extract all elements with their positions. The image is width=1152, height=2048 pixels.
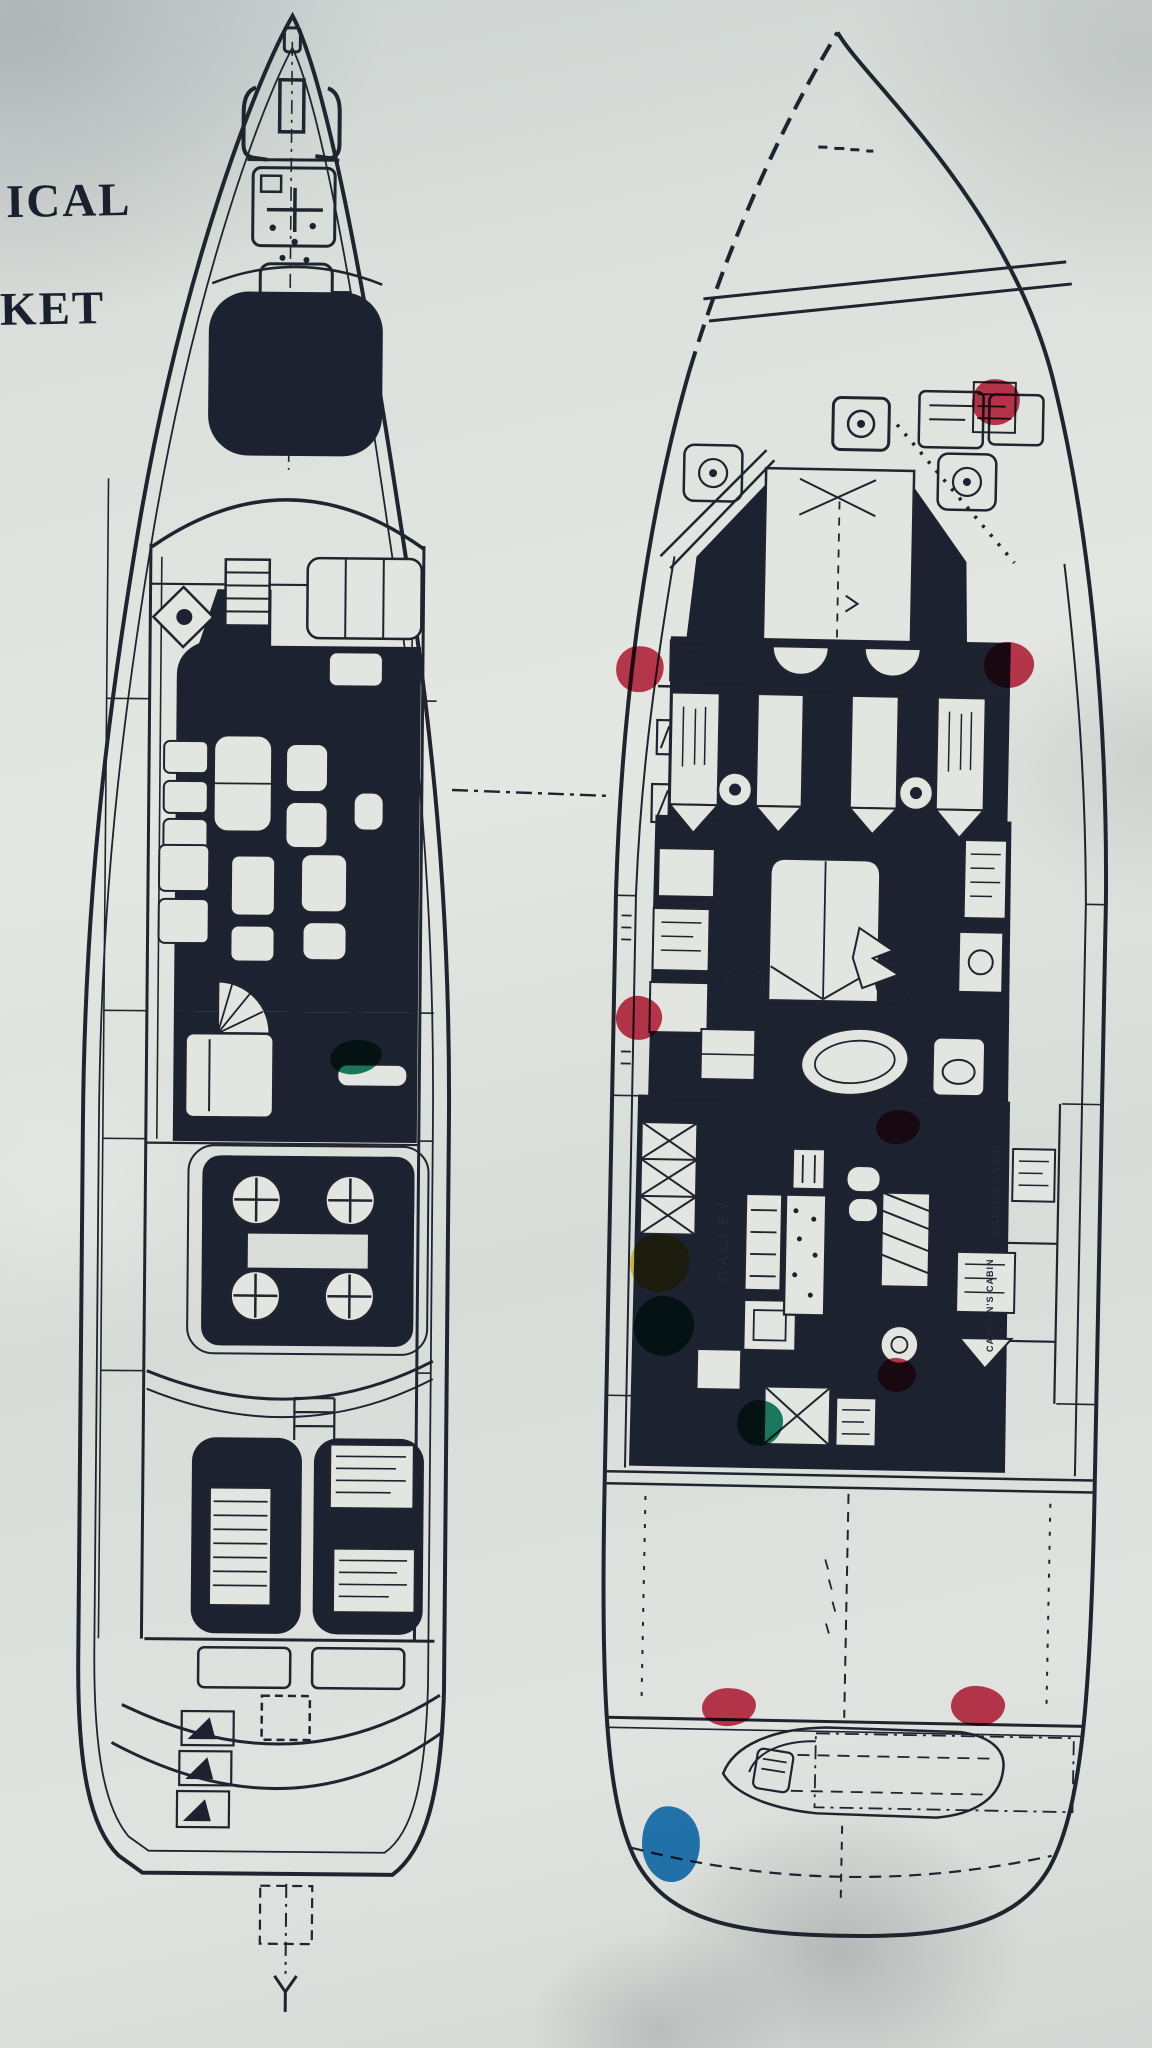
captains-cabin-label: CAPTAIN'S CABIN (986, 1259, 995, 1352)
crew-cabin-label: CREW'S CABIN (992, 1144, 1002, 1236)
witness-line (452, 790, 612, 796)
foredeck-sunpad (208, 291, 383, 457)
right-boat-lower-deck-plan (596, 28, 1122, 1940)
deck-plan-drawing (0, 0, 1152, 2048)
left-boat-main-deck-plan (75, 14, 458, 2013)
photocopied-deck-plan-photo: ICAL KET (0, 0, 1152, 2048)
galley-label: GALLEY (716, 1197, 731, 1282)
